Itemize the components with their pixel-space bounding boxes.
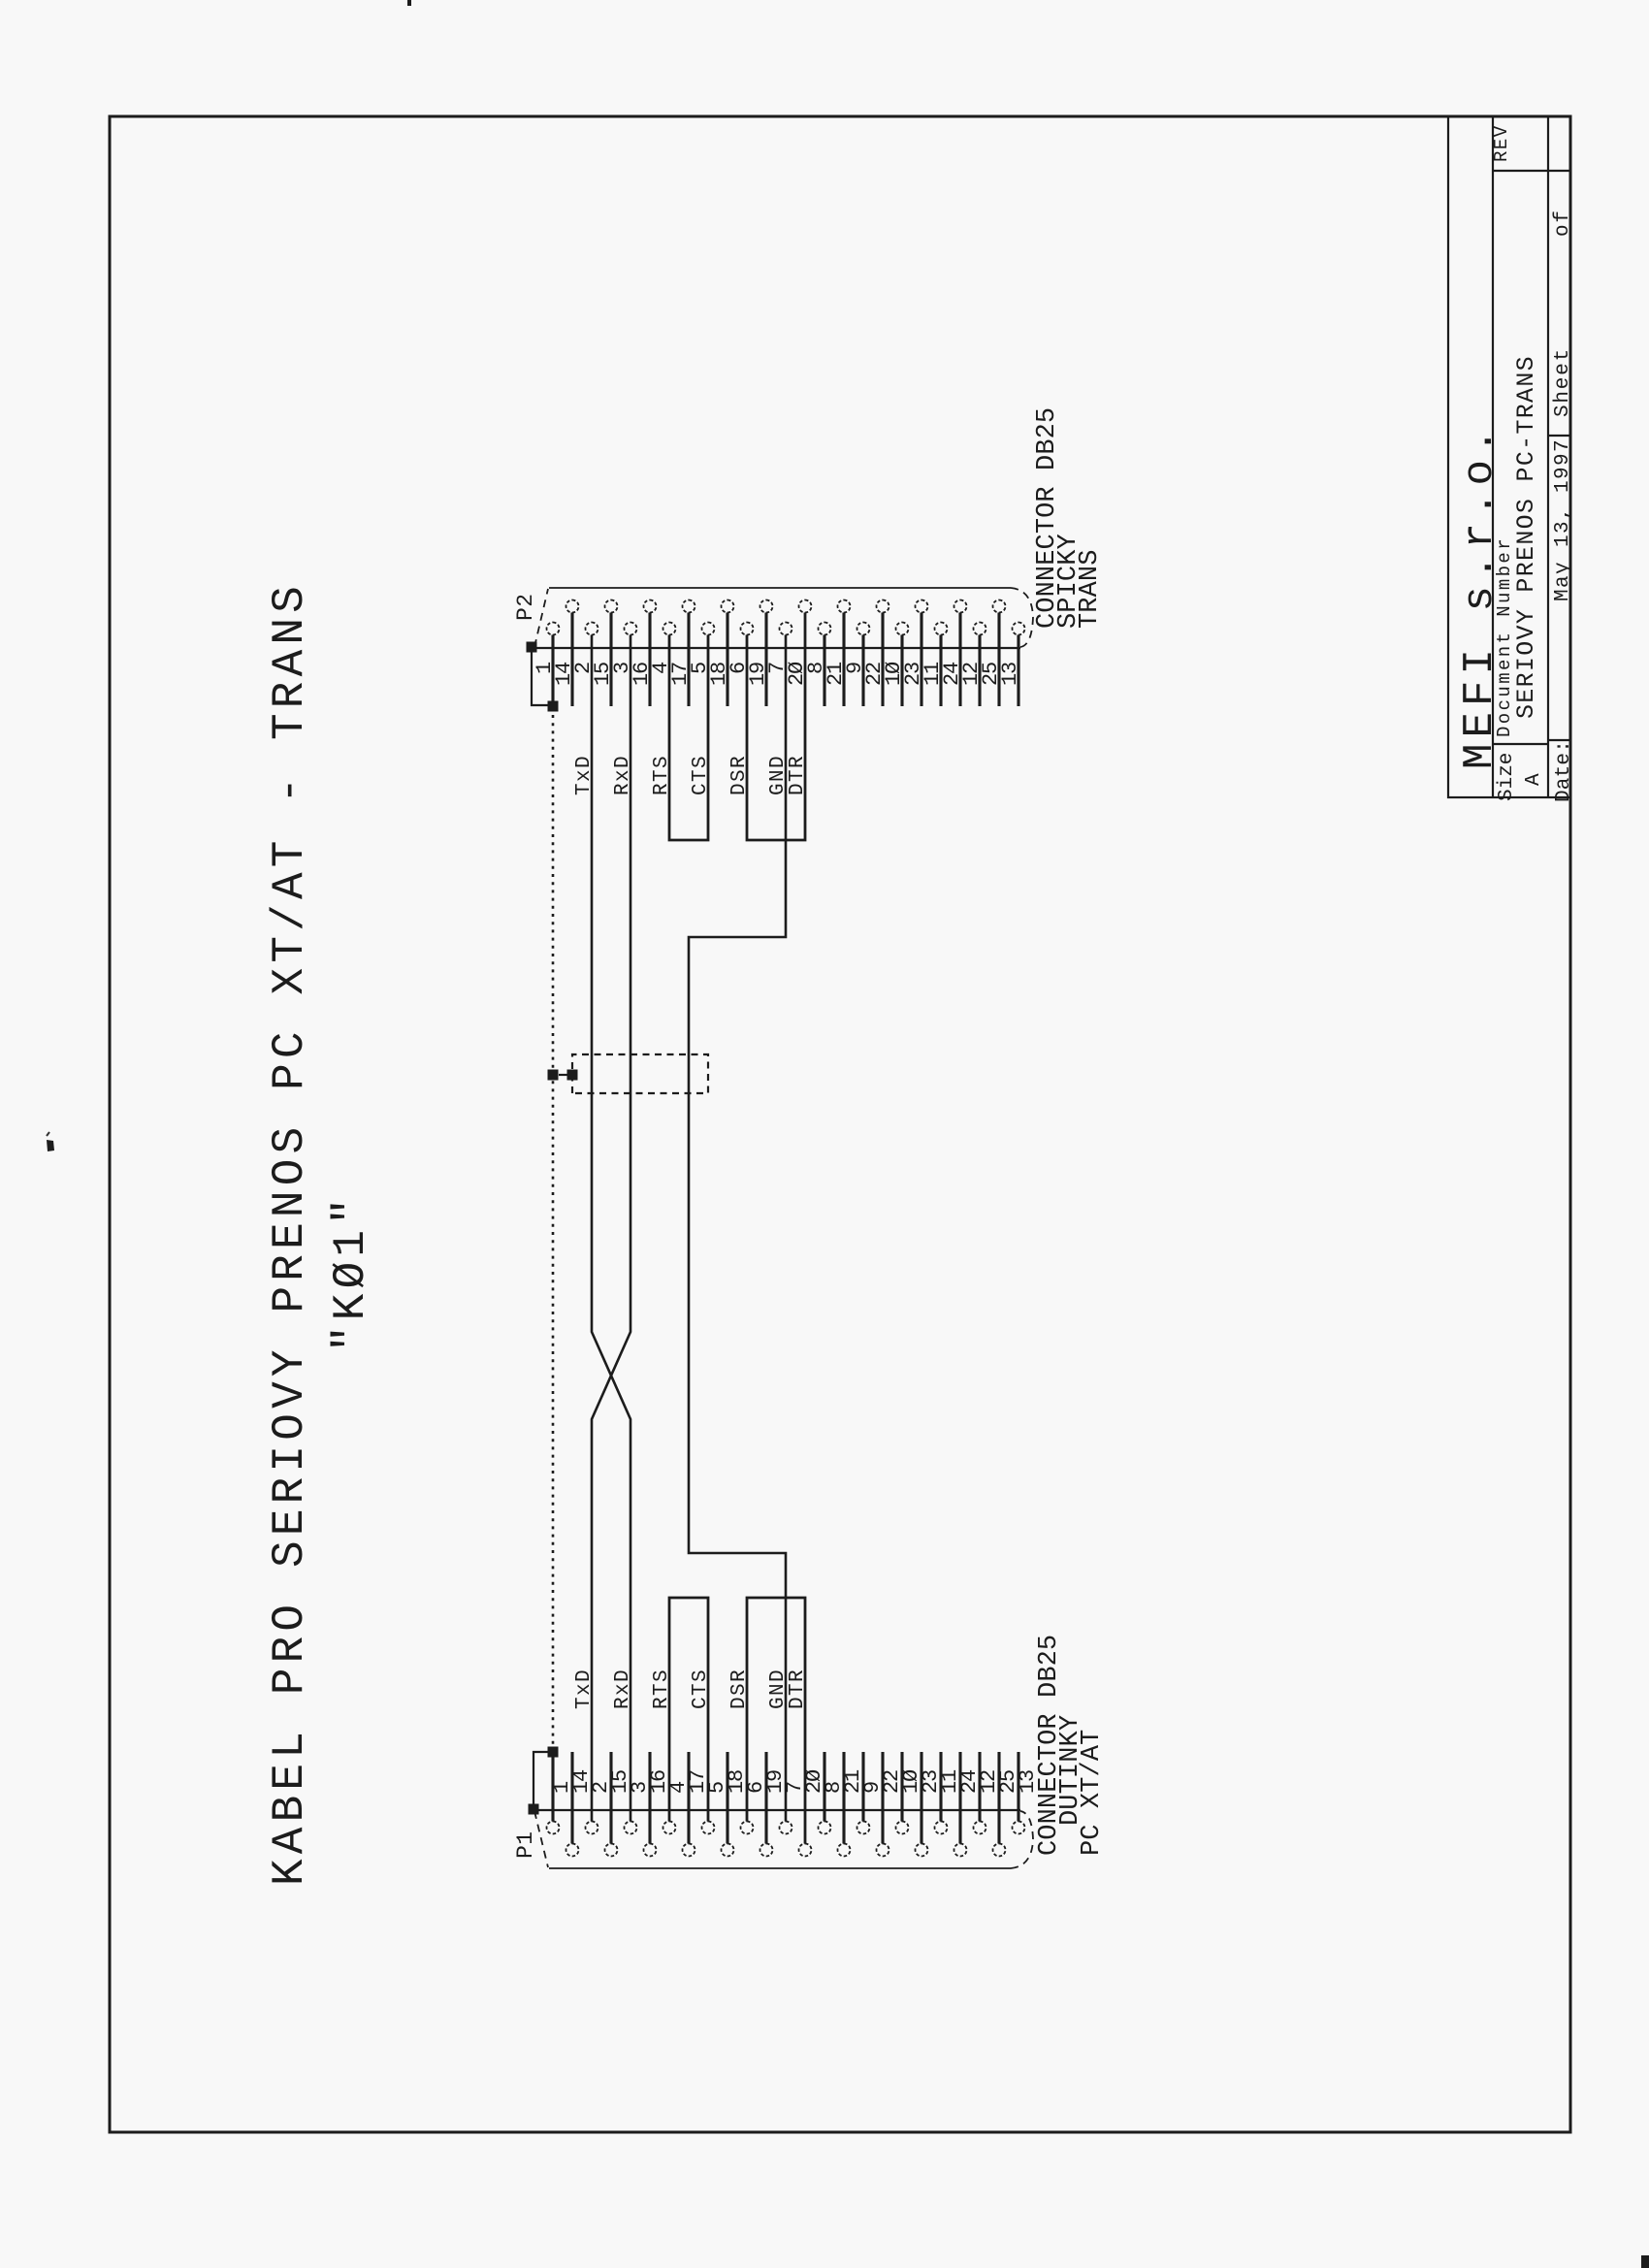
svg-text:SERIOVY PRENOS PC-TRANS: SERIOVY PRENOS PC-TRANS bbox=[1512, 355, 1540, 719]
svg-text:TRANS: TRANS bbox=[1076, 549, 1105, 629]
svg-text:DTR: DTR bbox=[787, 755, 809, 795]
svg-text:CTS: CTS bbox=[690, 1669, 712, 1709]
svg-text:May 13, 1997: May 13, 1997 bbox=[1552, 438, 1574, 601]
svg-text:P1: P1 bbox=[513, 1831, 538, 1859]
svg-text:REV: REV bbox=[1491, 124, 1512, 162]
svg-text:RTS: RTS bbox=[651, 1669, 673, 1709]
svg-text:Date:: Date: bbox=[1553, 740, 1575, 802]
svg-text:RxD: RxD bbox=[612, 1669, 634, 1709]
svg-text:TxD: TxD bbox=[573, 755, 596, 795]
svg-text:A: A bbox=[1523, 773, 1545, 786]
svg-text:of: of bbox=[1552, 209, 1574, 237]
svg-text:CTS: CTS bbox=[690, 755, 712, 795]
svg-text:KABEL PRO SERIOVY PRENOS PC X: KABEL PRO SERIOVY PRENOS PC XT/AT - TRAN… bbox=[265, 581, 315, 1886]
svg-text:P2: P2 bbox=[513, 593, 538, 621]
svg-text:DSR: DSR bbox=[728, 755, 751, 795]
svg-text:"KØ1": "KØ1" bbox=[326, 1193, 376, 1352]
svg-text:RTS: RTS bbox=[651, 755, 673, 795]
svg-text:Size: Size bbox=[1496, 753, 1518, 801]
svg-text:DTR: DTR bbox=[787, 1669, 809, 1709]
svg-text:Sheet: Sheet bbox=[1552, 347, 1574, 417]
svg-text:DSR: DSR bbox=[728, 1669, 751, 1709]
svg-text:RxD: RxD bbox=[612, 755, 634, 795]
svg-text:PC XT/AT: PC XT/AT bbox=[1078, 1730, 1107, 1856]
svg-text:TxD: TxD bbox=[573, 1669, 596, 1709]
